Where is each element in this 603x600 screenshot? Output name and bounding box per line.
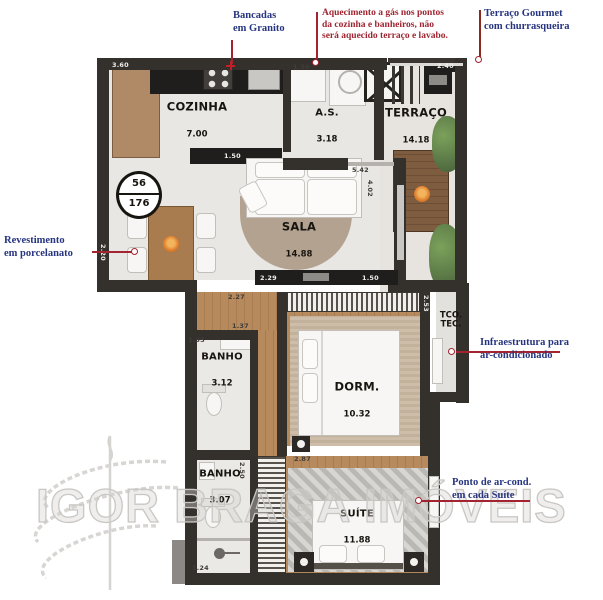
room-label-as: A.S. 3.18 [315,89,339,162]
suite-nightstand-right [404,552,424,572]
dim-2-40: 2.40 [437,62,454,70]
dining-chair-3 [196,213,216,239]
bedroom-pillow2 [302,373,318,403]
leader-ponto-ar-dot [415,497,422,504]
cozinha-name: COZINHA [167,100,227,113]
room-label-dorm: DORM. 10.32 [335,363,380,438]
dim-3-60: 3.60 [112,61,129,69]
wall-left-lower [185,280,197,585]
room-label-cozinha: COZINHA 7.00 [167,83,227,158]
dim-1-50-tank: 1.50 [293,63,310,71]
dim-4-02: 4.02 [366,180,374,197]
dining-bouquet [163,236,179,252]
dorm-name: DORM. [335,380,380,393]
wall-bedroom-right [420,292,430,456]
room-label-banho1: BANHO 3.12 [201,333,243,406]
terrace-glass-door [397,185,404,260]
terrace-flower-decor [414,186,430,202]
dorm-area: 10.32 [335,410,380,419]
suite-nightstand-left [294,552,314,572]
wall-dining-bottom [97,280,197,292]
dim-5-42: 5.42 [352,166,369,174]
banho1-area: 3.12 [201,380,243,389]
suite-area: 11.88 [340,537,374,546]
leader-bancadas-marker [226,61,235,70]
leader-aquecimento-dot [312,59,319,66]
dim-2-50: 2.50 [238,462,246,479]
dining-chair-4 [196,247,216,273]
floor-hall [258,330,277,456]
sala-name: SALA [282,220,316,233]
bedroom-nightstand [292,436,310,452]
wall-bedroom-left [277,292,287,456]
bedroom-blanket-fold [321,331,323,435]
annotation-ponto-ar: Ponto de ar-cond. em cada Suíte [452,477,531,503]
wall-tco-right [456,283,469,403]
suite-headboard [313,563,403,569]
dim-2-27: 2.27 [228,293,245,301]
leader-aquecimento [316,12,318,59]
dim-2-53: 2.53 [422,295,430,312]
washer-drum [338,70,362,94]
grill-grate [429,75,447,85]
unit-number-badge: 56 176 [116,171,162,219]
shower-arm [224,552,240,554]
leader-terraco-gourmet-dot [475,56,482,63]
bedroom-wardrobe [287,292,420,312]
unit-badge-bottom: 176 [119,195,159,214]
room-label-sala: SALA 14.88 [282,203,316,278]
terraco-area: 14.18 [385,136,447,145]
dim-1-35: 1.35 [188,336,205,344]
unit-badge-top: 56 [119,174,159,195]
wall-top-main [97,58,387,70]
dim-2-29: 2.29 [260,274,277,282]
dim-1-50-island: 1.50 [224,152,241,160]
wall-terrace-right [455,58,467,292]
annotation-bancadas: Bancadas em Granito [233,10,285,36]
bedroom-pillow1 [302,339,318,369]
wall-bottom [185,573,440,585]
annotation-terraco-gourmet: Terraço Gourmet com churrasqueira [484,8,569,34]
as-name: A.S. [315,107,339,118]
leader-revestimento-dot [131,248,138,255]
wall-as-terrace-divider [374,60,384,160]
dim-2-87: 2.87 [294,455,311,463]
leader-infraestrutura-dot [448,348,455,355]
terraco-name: TERRAÇO [385,106,447,119]
dim-1-37: 1.37 [232,322,249,330]
cozinha-area: 7.00 [167,130,227,139]
shower-glass [197,538,251,541]
annotation-aquecimento: Aquecimento a gás nos pontos da cozinha … [322,8,448,43]
floorplan-canvas: 3.60 1.50 2.40 1.50 5.42 4.02 2.20 2.29 … [0,0,603,600]
leader-terraco-gourmet [479,10,481,58]
as-area: 3.18 [315,136,339,145]
tco-door-panel [432,338,443,384]
room-label-terraco: TERRAÇO 14.18 [385,89,447,164]
dim-1-50-band: 1.50 [362,274,379,282]
wall-kitchen-as-divider [283,60,291,152]
dim-1-24: 1.24 [192,564,209,572]
leader-revestimento [92,251,134,253]
wall-tco-bottom [426,392,469,402]
annotation-infraestrutura: Infraestrutura para ar-condicionado [480,337,569,363]
banho1-name: BANHO [201,351,243,362]
sala-area: 14.88 [282,250,316,259]
annotation-revestimento: Revestimento em porcelanato [4,235,73,261]
room-label-tco: TCO. TEC. [440,312,462,331]
